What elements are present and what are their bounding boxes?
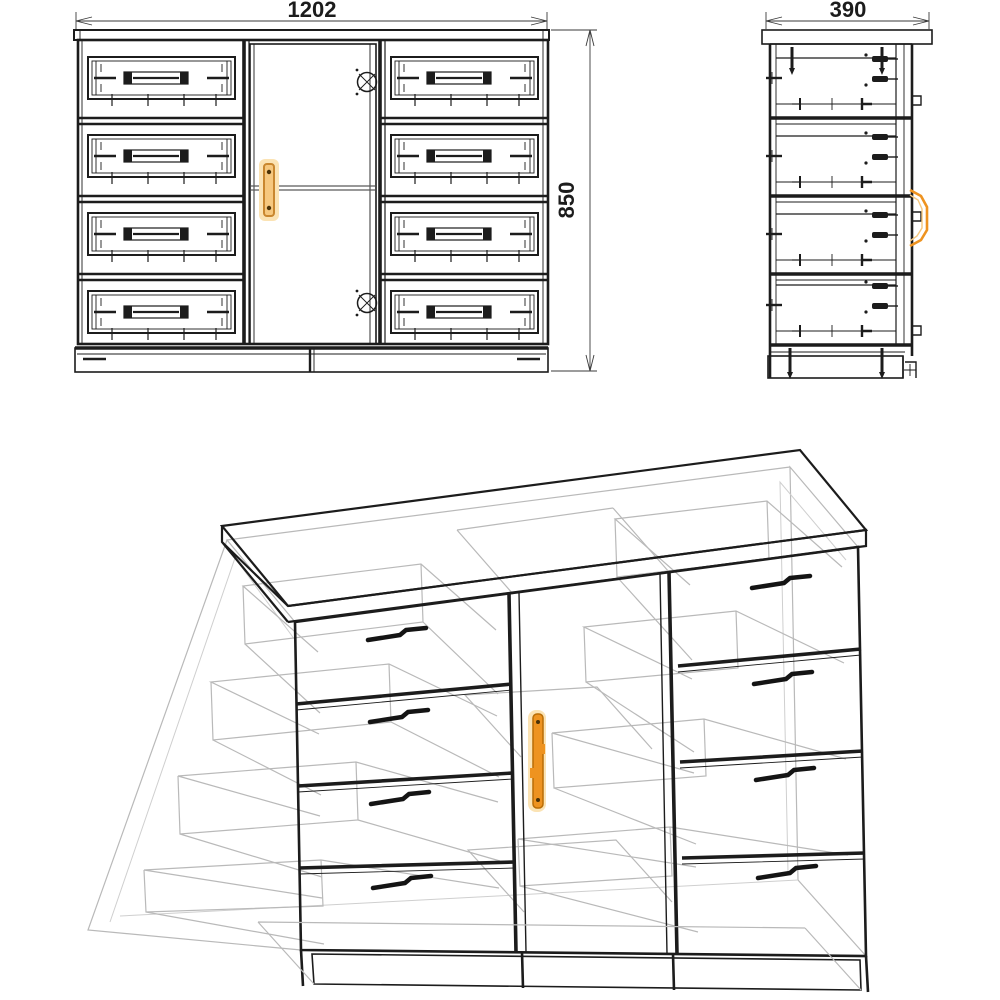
width-dimension-label: 1202 <box>288 0 337 22</box>
iso-door-handle <box>528 710 546 812</box>
drawer-handle <box>752 576 810 588</box>
side-drawer-box <box>766 131 898 188</box>
technical-drawing-page: 1202 850 <box>0 0 1000 1000</box>
drawer-front <box>88 213 235 262</box>
front-carcass <box>78 40 548 344</box>
drawer-front <box>391 213 538 262</box>
drawer-handle <box>756 768 814 780</box>
drawer-front <box>391 57 538 106</box>
side-drawer-box <box>766 280 898 337</box>
door-handle <box>259 159 279 221</box>
side-mount-tabs <box>912 96 921 335</box>
side-drawer-box <box>766 209 898 266</box>
drawer-handle <box>371 792 429 804</box>
height-dimension-label: 850 <box>554 182 579 219</box>
iso-top-panel <box>222 450 866 622</box>
side-plinth <box>768 348 916 379</box>
drawer-handle <box>758 866 816 878</box>
drawer-front <box>88 291 235 340</box>
drawer-handle <box>373 876 431 888</box>
side-drawer-box <box>766 53 898 110</box>
isometric-view <box>88 450 868 992</box>
drawer-front <box>391 135 538 184</box>
door-hinge-icon <box>356 69 377 96</box>
side-top-panel <box>762 30 932 44</box>
dresser-technical-drawing: 1202 850 <box>0 0 1000 1000</box>
drawer-handle <box>754 672 812 684</box>
front-plinth <box>75 348 548 372</box>
front-top-panel <box>74 30 549 40</box>
iso-carcass <box>295 547 866 956</box>
front-door <box>250 44 377 344</box>
drawer-front <box>88 135 235 184</box>
iso-hidden-lines <box>88 467 866 956</box>
depth-dimension: 390 <box>766 0 929 29</box>
side-top-screws <box>789 47 885 75</box>
width-dimension: 1202 <box>76 0 547 29</box>
front-right-drawers <box>391 57 538 340</box>
drawer-front <box>88 57 235 106</box>
drawer-handle <box>370 710 428 722</box>
door-hinge-icon <box>356 290 377 317</box>
height-dimension: 850 <box>551 30 597 371</box>
side-view: 390 <box>762 0 932 379</box>
drawer-handle <box>368 628 426 640</box>
depth-dimension-label: 390 <box>830 0 867 22</box>
front-view: 1202 850 <box>74 0 597 372</box>
iso-plinth <box>258 922 868 992</box>
drawer-front <box>391 291 538 340</box>
front-left-drawers <box>88 57 235 340</box>
